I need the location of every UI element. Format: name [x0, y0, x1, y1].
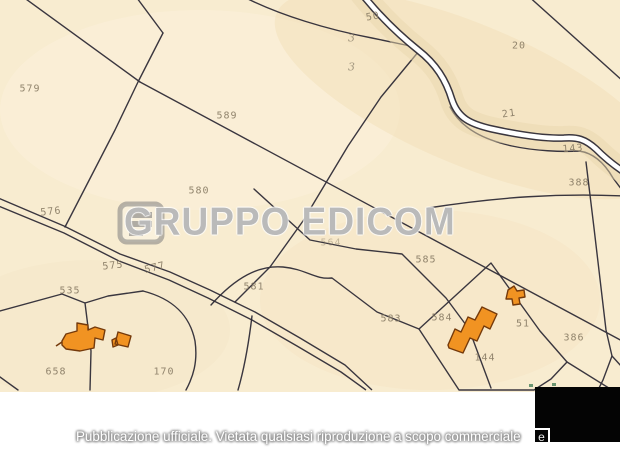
scanned-cadastral-page: 5795895805765020211433885645755775355815…: [0, 0, 620, 450]
edge-mark: [552, 383, 556, 386]
cadastral-map: 5795895805765020211433885645755775355815…: [0, 0, 620, 392]
boxed-letter: e: [533, 428, 550, 447]
footer-strip: Pubblicazione ufficiale. Vietata qualsia…: [0, 392, 620, 450]
edge-mark: [529, 384, 533, 387]
boundary-line: [238, 316, 252, 390]
boundary-line: [567, 362, 612, 390]
map-canvas: [0, 0, 620, 392]
official-publication-caption: Pubblicazione ufficiale. Vietata qualsia…: [76, 429, 521, 444]
boundary-line: [612, 356, 620, 367]
